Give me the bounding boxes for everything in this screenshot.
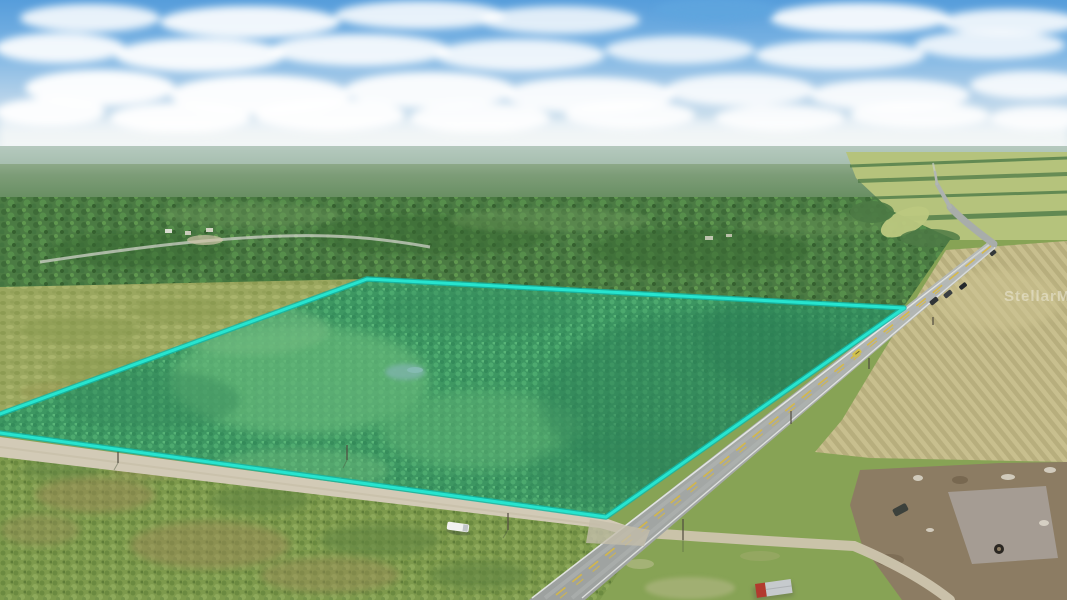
watermark: StellarMLS (1004, 288, 1067, 305)
aerial-photo-canvas (0, 0, 1067, 600)
aerial-photo: StellarMLS (0, 0, 1067, 600)
